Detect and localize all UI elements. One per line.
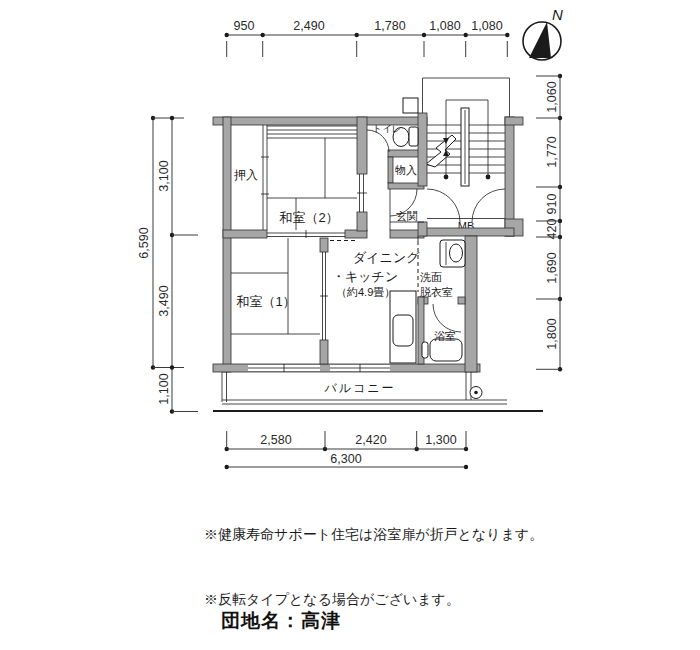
- room-label-balcony: バルコニー: [323, 381, 395, 395]
- toilet-tank: [409, 127, 418, 146]
- kitchen-sink: [393, 315, 413, 346]
- north-arrow-icon: [529, 22, 551, 58]
- dim-left-balcony: 1,100: [157, 373, 171, 404]
- dim-right-1690: 1,690: [545, 252, 559, 283]
- room-label-bath: 浴室: [434, 330, 456, 342]
- dim-top-2490: 2,490: [293, 19, 324, 33]
- dim-left-upper: 3,100: [157, 160, 171, 191]
- stair-break-symbol: [426, 135, 456, 167]
- dim-right-1800: 1,800: [545, 318, 559, 349]
- compass-north-label: N: [552, 6, 563, 23]
- dim-right-1060: 1,060: [545, 81, 559, 112]
- dim-bottom-2580: 2,580: [260, 433, 291, 447]
- dim-right-910: 910: [545, 194, 559, 215]
- bathtub: [430, 339, 462, 361]
- entry-door-swing-right: [472, 189, 505, 222]
- walls: [213, 113, 523, 372]
- dim-top-1780: 1,780: [374, 19, 405, 33]
- duct-box: [403, 98, 418, 113]
- dim-left-total: 6,590: [137, 227, 151, 258]
- info-danchi-name: 団地名：高津: [221, 609, 366, 634]
- room-label-senmen-1: 洗面: [420, 271, 442, 283]
- room-label-washitsu1: 和室（1）: [235, 294, 295, 309]
- room-label-monoire: 物入: [395, 164, 417, 176]
- room-label-toilet: トイレ: [372, 123, 401, 134]
- dimension-right: 1,060 1,770 910 420 1,690 1,800: [536, 74, 562, 372]
- note-line: ※健康寿命サポート住宅は浴室扉が折戸となります。: [204, 524, 543, 546]
- dim-top-950: 950: [234, 19, 255, 33]
- dim-right-1770: 1,770: [545, 136, 559, 167]
- room-label-dk-3: （約4.9畳）: [336, 286, 395, 298]
- dim-bottom-total: 6,300: [330, 452, 361, 466]
- dim-left-lower: 3,490: [157, 285, 171, 316]
- entry-door-swing-left: [427, 189, 460, 222]
- bath-door-swing: [433, 304, 461, 332]
- dimension-left: 6,590 3,100 3,490 1,100: [137, 116, 198, 414]
- dim-top-1080b: 1,080: [471, 19, 502, 33]
- room-label-washitsu2: 和室（2）: [278, 210, 338, 225]
- dimension-bottom: 2,580 2,420 1,300 6,300: [225, 431, 469, 469]
- dim-bottom-2420: 2,420: [355, 433, 386, 447]
- room-label-dk-2: ・キッチン: [332, 269, 398, 284]
- floorplan-page: N 950 2,490 1,780 1,080 1,080 6,590 3,10…: [0, 0, 700, 650]
- room-label-dk-1: ダイニング: [353, 250, 420, 265]
- info-block: 団地名：高津 型 式：2DK タイプ：2A 図面No：30221: [221, 560, 366, 650]
- compass: N: [523, 6, 563, 60]
- room-label-oshiire: 押入: [233, 168, 258, 182]
- dimension-top: 950 2,490 1,780 1,080 1,080: [225, 19, 510, 57]
- dim-top-1080a: 1,080: [429, 19, 460, 33]
- dim-right-420: 420: [545, 219, 559, 240]
- room-label-genkan: 玄関: [396, 210, 418, 222]
- room-label-senmen-2: 脱衣室: [420, 286, 453, 298]
- dim-bottom-1300: 1,300: [425, 433, 456, 447]
